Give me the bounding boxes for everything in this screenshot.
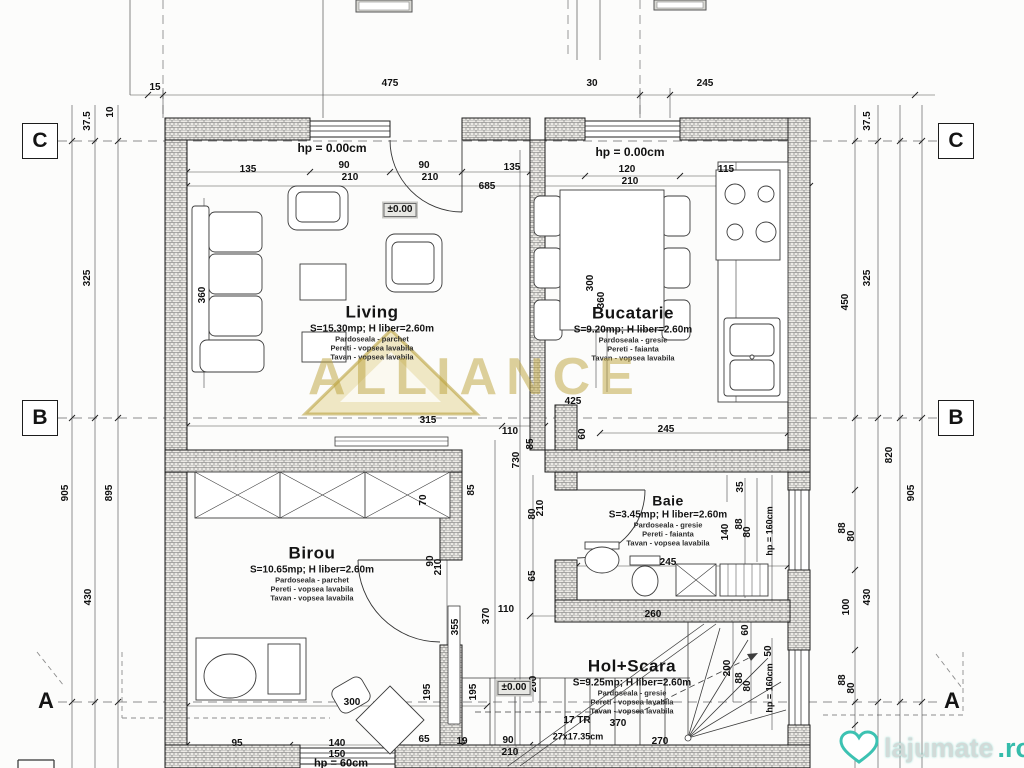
room-label-baie: Baie S=3.45mp; H liber=2.60m Pardoseala … — [609, 493, 727, 548]
room-finish: Tavan - vopsea lavabila — [573, 707, 691, 716]
dim-label: 895 — [105, 485, 115, 502]
dim-label: 60 — [741, 624, 751, 635]
room-finish: Tavan - vopsea lavabila — [609, 539, 727, 548]
dim-label: 37.5 — [863, 111, 873, 130]
dim-label: 85 — [526, 438, 536, 449]
dim-label: 325 — [83, 270, 93, 287]
room-label-birou: Birou S=10.65mp; H liber=2.60m Pardoseal… — [250, 544, 374, 603]
room-name: Living — [310, 303, 434, 323]
dim-label: 245 — [660, 558, 677, 568]
bathroom-fixtures — [585, 542, 768, 596]
dim-label: 300 — [344, 698, 361, 708]
room-name: Birou — [250, 544, 374, 564]
dim-label: 210 — [422, 173, 439, 183]
dim-label: 730 — [512, 452, 522, 469]
dim-label: 15 — [149, 83, 160, 93]
dim-label: 905 — [61, 485, 71, 502]
room-label-hol-scara: Hol+Scara S=9.25mp; H liber=2.60m Pardos… — [573, 657, 691, 716]
construction-lines — [130, 0, 600, 118]
dim-label: 80 — [743, 526, 753, 537]
room-finish: Pardoseala - gresie — [609, 521, 727, 530]
axis-marker-b-left: B — [22, 400, 58, 436]
dim-label: 27x17.35cm — [553, 733, 604, 742]
dim-label: 260 — [645, 610, 662, 620]
dim-label: hp = 0.00cm — [297, 142, 366, 154]
room-finish: Pardoseala - gresie — [573, 689, 691, 698]
dim-label: 270 — [652, 737, 669, 747]
dim-label: 200 — [723, 660, 733, 677]
dim-label: 80 — [847, 682, 857, 693]
dim-label: 355 — [451, 619, 461, 636]
dim-label: 450 — [841, 294, 851, 311]
dim-label: 85 — [467, 484, 477, 495]
dim-label: 30 — [586, 79, 597, 89]
dim-label: 70 — [419, 494, 429, 505]
dim-label: 905 — [907, 485, 917, 502]
dim-label: 195 — [423, 684, 433, 701]
room-finish: Pereti - vopsea lavabila — [250, 585, 374, 594]
room-finish: Tavan - vopsea lavabila — [250, 594, 374, 603]
office-furniture — [195, 472, 450, 754]
dim-label: 360 — [597, 292, 607, 309]
dim-label: hp = 60cm — [314, 759, 368, 768]
dim-label: 90 — [338, 161, 349, 171]
dim-label: 17 TR — [563, 716, 590, 726]
dim-label: 120 — [619, 165, 636, 175]
dim-label: 210 — [434, 559, 444, 576]
dim-label: hp = 0.00cm — [595, 146, 664, 158]
dim-label: 685 — [479, 182, 496, 192]
dim-label: 300 — [586, 275, 596, 292]
room-finish: Pardoseala - gresie — [574, 336, 692, 345]
room-finish: Pardoseala - parchet — [250, 576, 374, 585]
dim-label: 90 — [502, 736, 513, 746]
dim-label: ±0.00 — [498, 681, 531, 695]
dim-label: hp = 160cm — [766, 663, 775, 712]
axis-marker-a-right: A — [944, 688, 960, 714]
dim-label: 210 — [502, 748, 519, 758]
dim-label: 19 — [456, 737, 467, 747]
room-finish: Pereti - vopsea lavabila — [573, 698, 691, 707]
dim-label: 10 — [106, 106, 116, 117]
dim-label: 325 — [863, 270, 873, 287]
axis-marker-a-left: A — [38, 688, 54, 714]
room-name: Bucatarie — [574, 304, 692, 324]
room-area: S=9.25mp; H liber=2.60m — [573, 678, 691, 689]
site-name: lajumate — [884, 733, 994, 764]
heart-logo-icon — [838, 730, 880, 766]
room-finish: Pardoseala - parchet — [310, 335, 434, 344]
room-name: Baie — [609, 493, 727, 509]
dim-label: 315 — [420, 416, 437, 426]
lajumate-watermark: lajumate.ro — [838, 730, 1024, 766]
dim-label: 370 — [610, 719, 627, 729]
dim-label: 210 — [536, 500, 546, 517]
axis-marker-b-right: B — [938, 400, 974, 436]
room-area: S=15.30mp; H liber=2.60m — [310, 324, 434, 335]
dim-label: 110 — [502, 427, 518, 437]
dim-label: 245 — [697, 79, 714, 89]
dim-label: 65 — [528, 570, 538, 581]
dim-label: 360 — [198, 287, 208, 304]
dim-label: hp = 160cm — [766, 506, 775, 555]
dim-label: 430 — [84, 589, 94, 606]
room-name: Hol+Scara — [573, 657, 691, 677]
site-tld: .ro — [998, 733, 1024, 764]
dim-label: 100 — [842, 599, 852, 616]
dim-label: 60 — [578, 428, 588, 439]
dim-label: ±0.00 — [384, 203, 417, 217]
dim-label: 135 — [504, 163, 521, 173]
dim-label: 210 — [342, 173, 359, 183]
dim-label: 110 — [498, 605, 514, 615]
dim-label: 50 — [764, 645, 774, 656]
dim-label: 200 — [529, 676, 539, 693]
room-area: S=3.45mp; H liber=2.60m — [609, 510, 727, 521]
dim-label: 195 — [469, 684, 479, 701]
dim-label: 370 — [482, 608, 492, 625]
dim-label: 95 — [231, 739, 242, 749]
dim-label: 210 — [622, 177, 639, 187]
dim-label: 37.5 — [83, 111, 93, 130]
dim-label: 115 — [718, 165, 734, 175]
dim-label: 475 — [382, 79, 399, 89]
dim-label: 35 — [736, 481, 746, 492]
dim-label: 820 — [885, 447, 895, 464]
room-area: S=10.65mp; H liber=2.60m — [250, 565, 374, 576]
room-finish: Pereti - faianta — [609, 530, 727, 539]
alliance-watermark: ALLIANCE — [308, 347, 643, 407]
dim-label: 245 — [658, 425, 675, 435]
dim-label: 140 — [721, 524, 731, 541]
floor-plan-page: C B A C B A Living S=15.30mp; H liber=2.… — [0, 0, 1024, 768]
axis-marker-c-left: C — [22, 123, 58, 159]
axis-marker-c-right: C — [938, 123, 974, 159]
dim-label: 80 — [743, 680, 753, 691]
dim-label: 90 — [418, 161, 429, 171]
dim-label: 430 — [863, 589, 873, 606]
dim-label: 80 — [847, 530, 857, 541]
dim-label: 65 — [418, 735, 429, 745]
dim-label: 140 — [329, 739, 346, 749]
room-area: S=9.20mp; H liber=2.60m — [574, 325, 692, 336]
dim-label: 135 — [240, 165, 257, 175]
